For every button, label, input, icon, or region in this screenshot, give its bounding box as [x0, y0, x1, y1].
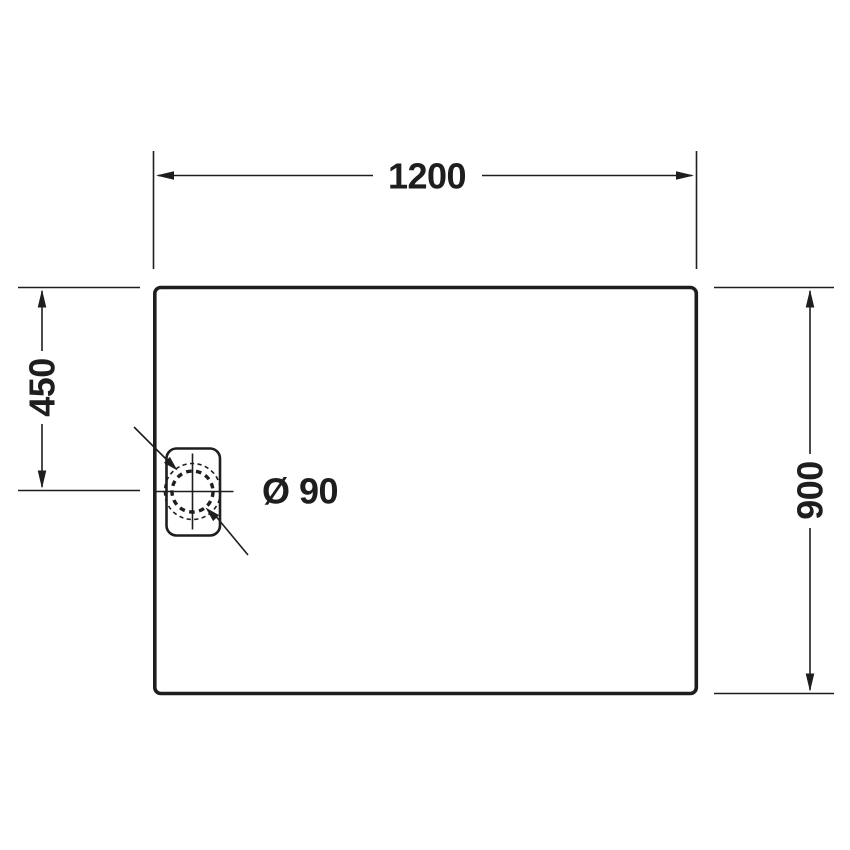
- drain-diameter-label: Ø 90: [262, 471, 338, 512]
- drain-leader-line-lower: [214, 514, 248, 555]
- drain-assembly: [134, 427, 248, 555]
- tray-outline: [155, 288, 697, 694]
- arrowhead-left-icon: [156, 171, 174, 180]
- drawing-root: 1200 450 900 Ø 90: [18, 151, 834, 694]
- top-width-label: 1200: [388, 156, 466, 197]
- dimension-labels: 1200 450 900 Ø 90: [22, 156, 831, 520]
- drain-leader-line-upper: [134, 427, 170, 463]
- right-height-label: 900: [790, 461, 831, 520]
- left-offset-label: 450: [22, 358, 63, 417]
- drain-leader-arrowhead-lower-icon: [206, 508, 220, 522]
- drawing-canvas: 1200 450 900 Ø 90: [0, 0, 850, 850]
- arrowhead-up-left-dim-icon: [38, 290, 47, 308]
- arrowhead-up-right-dim-icon: [806, 290, 815, 308]
- arrowhead-down-left-dim-icon: [38, 471, 47, 489]
- arrowhead-down-right-dim-icon: [806, 674, 815, 692]
- arrowhead-right-icon: [676, 171, 694, 180]
- technical-drawing: 1200 450 900 Ø 90: [0, 0, 850, 850]
